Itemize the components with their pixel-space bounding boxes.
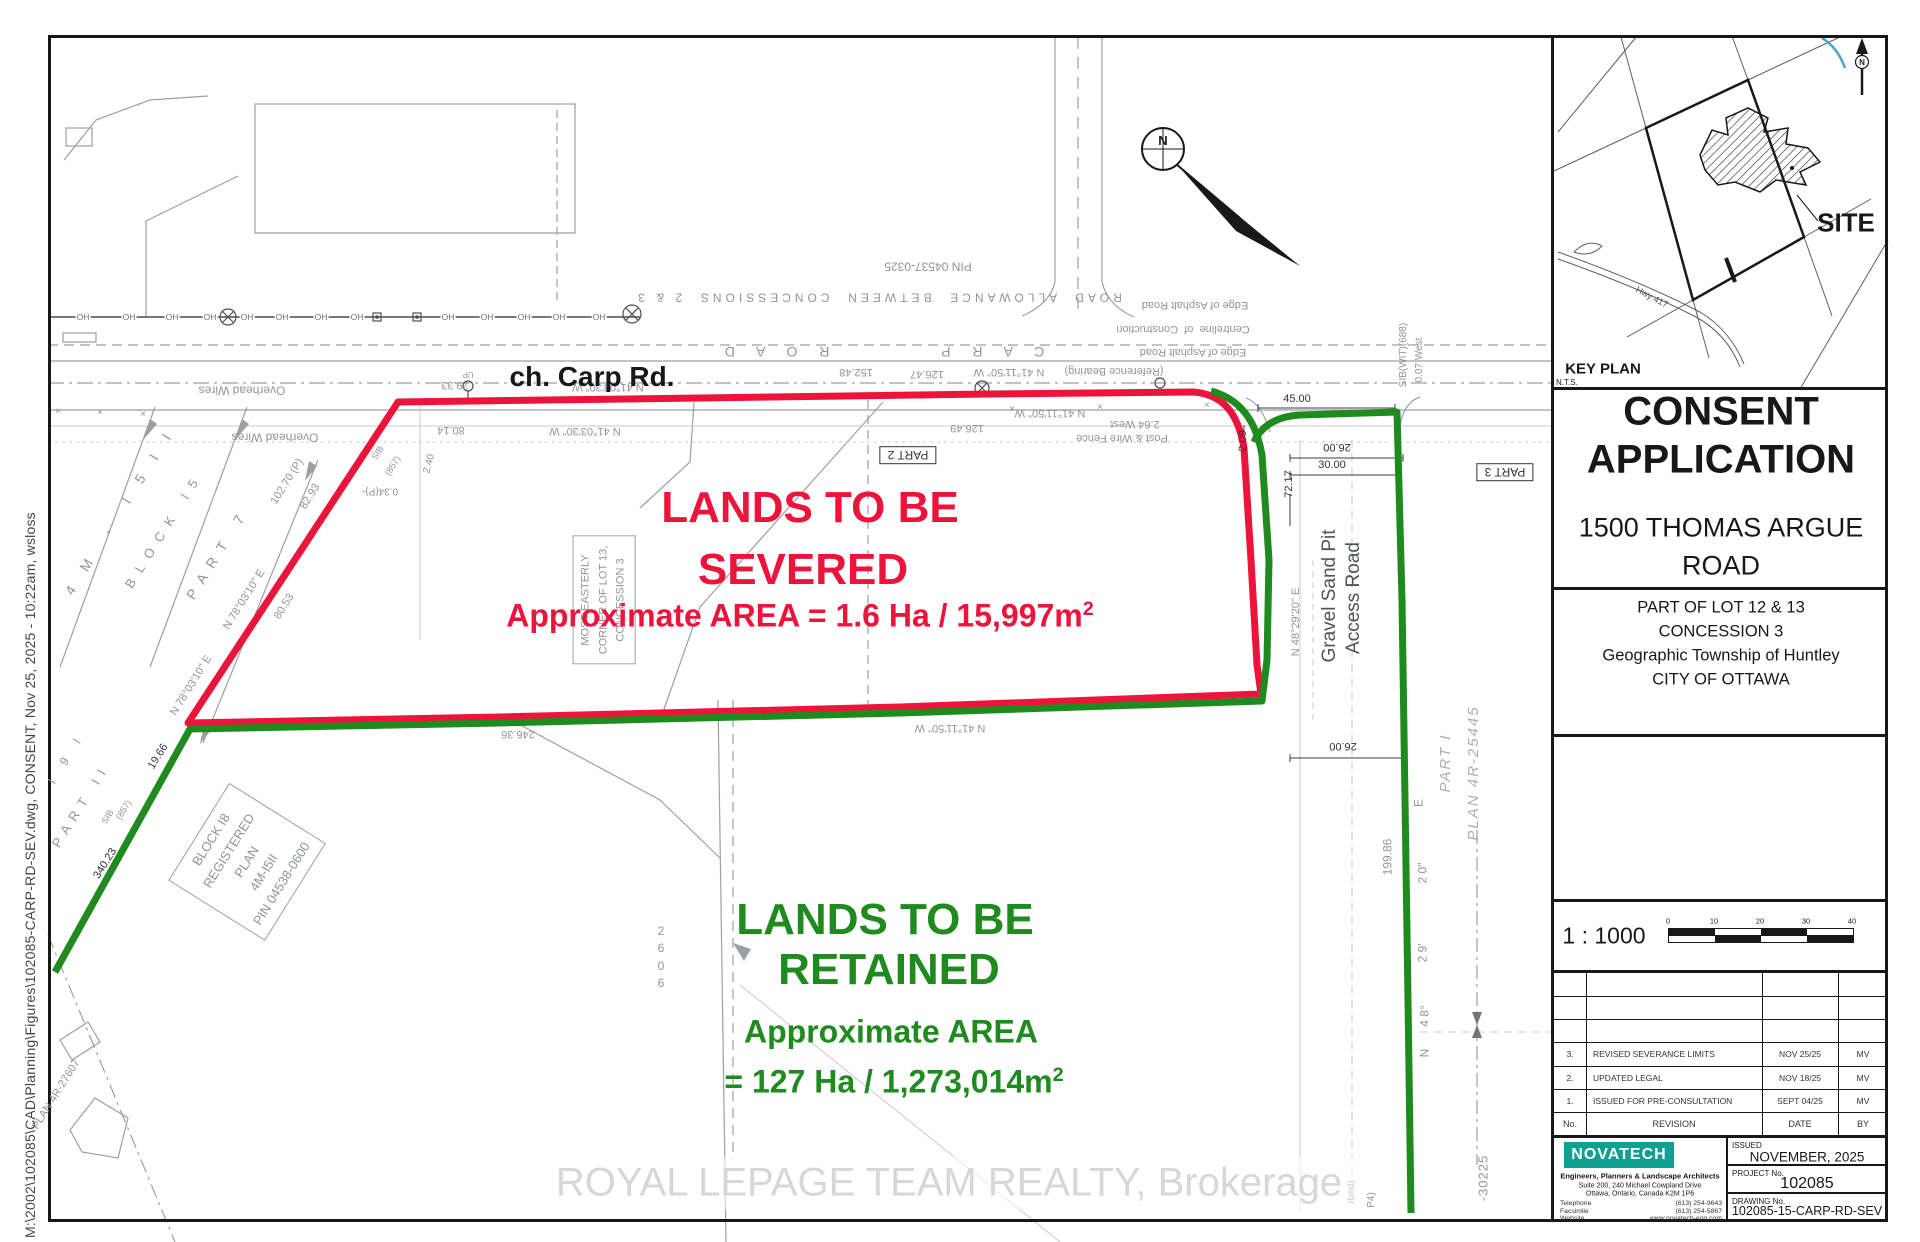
survey-annotation: C A R P R O A D: [716, 342, 1044, 362]
survey-annotation: Edge of Asphalt Road: [1142, 296, 1248, 312]
oh-wire-tag: OH: [480, 312, 495, 322]
project-number-value: 102085: [1780, 1175, 1833, 1193]
survey-annotation: N 41°11'50" W: [974, 363, 1045, 379]
retained-label-line2: RETAINED: [778, 945, 1000, 995]
survey-annotation: ×: [1204, 399, 1210, 414]
oh-wire-tag: OH: [275, 312, 290, 322]
scale-tick-label: 30: [1802, 917, 1810, 926]
oh-wire-tag: OH: [350, 312, 365, 322]
contact-label: Website: [1560, 1215, 1584, 1222]
issued-value: NOVEMBER, 2025: [1750, 1150, 1865, 1165]
survey-annotation: 126.49: [950, 419, 984, 435]
survey-annotation: UP: [462, 368, 473, 380]
revision-row: [1554, 996, 1888, 1019]
scale-tick-label: 40: [1848, 917, 1856, 926]
survey-annotation: N: [1416, 1049, 1433, 1058]
address-line2: ROAD: [1682, 551, 1760, 582]
survey-annotation: SIB(WIT)(688): [1397, 323, 1412, 387]
carp-road-label: ch. Carp Rd.: [510, 361, 675, 393]
contact-value: www.novatech-eng.com: [1650, 1215, 1722, 1222]
survey-annotation: ×: [55, 405, 61, 420]
plan-sheet: N N PIN 04537-0325ROAD: [0, 0, 1920, 1242]
oh-wire-tag: OH: [165, 312, 180, 322]
revision-cell: BY: [1838, 1119, 1888, 1129]
project-number-label: PROJECT No.: [1732, 1169, 1784, 1178]
survey-annotation: 26.00: [1329, 737, 1357, 753]
firm-contact-row: Telephone(613) 254-9643: [1560, 1200, 1722, 1207]
site-parcel-hatch: [1700, 108, 1820, 192]
legal-line: Geographic Township of Huntley: [1602, 647, 1839, 666]
drawing-number-value: 102085-15-CARP-RD-SEV: [1732, 1204, 1882, 1218]
project-title-line2: APPLICATION: [1587, 438, 1855, 483]
survey-annotation: Overhead Wires: [199, 381, 286, 398]
survey-annotation: PART I: [1435, 734, 1457, 793]
firm-tagline: Engineers, Planners & Landscape Architec…: [1560, 1172, 1719, 1181]
survey-annotation: 30.00: [1318, 458, 1346, 474]
survey-annotation: N 41°11'50" W: [915, 719, 986, 735]
revision-cell: 3.: [1554, 1049, 1586, 1059]
oh-wire-tag: OH: [314, 312, 329, 322]
survey-annotation: 2 6 0 6: [658, 923, 665, 993]
survey-annotation: Edge of Asphalt Road: [1140, 343, 1246, 359]
contact-label: Telephone: [1560, 1200, 1591, 1207]
retained-area-label2: = 127 Ha / 1,273,014m2: [724, 1064, 1063, 1101]
scale-bar-bottom: [1668, 935, 1854, 944]
survey-annotation: ×: [140, 408, 146, 423]
legal-line: PART OF LOT 12 & 13: [1637, 599, 1805, 618]
legal-line: CONCESSION 3: [1659, 623, 1784, 642]
survey-annotation: 2.09: [1236, 430, 1252, 451]
revision-cell: UPDATED LEGAL: [1586, 1073, 1762, 1083]
tb-rule: [1554, 1135, 1888, 1138]
revision-table: 3.REVISED SEVERANCE LIMITSNOV 25/25MV2.U…: [1554, 973, 1888, 1135]
revision-row: 3.REVISED SEVERANCE LIMITSNOV 25/25MV: [1554, 1042, 1888, 1065]
firm-contact-row: Websitewww.novatech-eng.com: [1560, 1215, 1722, 1222]
survey-annotation: Post & Wire Fence: [1076, 429, 1168, 445]
scale-tick-label: 20: [1756, 917, 1764, 926]
keyplan-scale-note: N.T.S.: [1556, 378, 1578, 387]
keyplan-north-letter: N: [1859, 58, 1865, 67]
oh-wire-tag: OH: [552, 312, 567, 322]
survey-annotation: N 41°03'30" W: [549, 422, 621, 438]
firm-address2: Ottawa, Ontario, Canada K2M 1P6: [1586, 1191, 1694, 1198]
revision-cell: No.: [1554, 1119, 1586, 1129]
project-title-line1: CONSENT: [1623, 390, 1819, 435]
oh-wire-tag: OH: [122, 312, 137, 322]
revision-cell: NOV 18/25: [1762, 1073, 1838, 1083]
survey-annotation: ROAD ALLOWANCE BETWEEN CONCESSIONS 2 & 3: [634, 288, 1122, 305]
revision-cell: 1.: [1554, 1096, 1586, 1106]
firm-contact-row: Facsimile(613) 254-5867: [1560, 1208, 1722, 1215]
contact-label: Facsimile: [1560, 1208, 1589, 1215]
survey-annotation: PART 2: [880, 446, 937, 464]
survey-annotation: PIN 04537-0325: [884, 257, 971, 274]
north-letter: N: [1158, 133, 1167, 148]
revision-row: 1.ISSUED FOR PRE-CONSULTATIONSEPT 04/25M…: [1554, 1089, 1888, 1112]
scale-ratio: 1 : 1000: [1562, 923, 1645, 950]
survey-annotation: 152.48: [839, 363, 873, 379]
severed-area-label: Approximate AREA = 1.6 Ha / 15,997m2: [506, 598, 1094, 635]
revision-cell: REVISED SEVERANCE LIMITS: [1586, 1049, 1762, 1059]
revision-cell: MV: [1838, 1096, 1888, 1106]
survey-annotation: 80.14: [437, 421, 465, 437]
oh-wire-tag: OH: [203, 312, 218, 322]
oh-wire-tag: OH: [517, 312, 532, 322]
survey-annotation: PLAN 4R-25445: [1463, 705, 1485, 840]
oh-wire-tag: OH: [240, 312, 255, 322]
oh-wire-tag: OH: [592, 312, 607, 322]
survey-annotation: N 41°11'50" W: [1015, 404, 1086, 420]
revision-cell: ISSUED FOR PRE-CONSULTATION: [1586, 1096, 1762, 1106]
novatech-logo: NOVATECH: [1564, 1142, 1674, 1168]
plot-stamp: M:\2002\102085\CAD\Planning\Figures\1020…: [22, 512, 38, 1238]
revision-cell: MV: [1838, 1049, 1888, 1059]
survey-annotation: -30225: [1475, 1155, 1494, 1201]
survey-annotation: ×: [1097, 401, 1103, 416]
revision-cell: 2.: [1554, 1073, 1586, 1083]
survey-annotation: Centreline of Construction: [1116, 320, 1249, 336]
water-feature: [1822, 38, 1845, 68]
survey-annotation: 2 9': [1414, 944, 1431, 963]
revision-row: [1554, 1019, 1888, 1042]
survey-annotation: 246.36: [501, 725, 535, 741]
survey-annotation: 0.07 West: [1413, 338, 1428, 383]
revision-cell: MV: [1838, 1073, 1888, 1083]
contact-value: (613) 254-5867: [1676, 1208, 1722, 1215]
severed-label-line2: SEVERED: [698, 545, 908, 595]
survey-annotation: (Reference Bearing): [1064, 362, 1163, 378]
tb-rule: [1554, 587, 1888, 590]
revision-cell: DATE: [1762, 1119, 1838, 1129]
survey-annotation: Access Road: [1340, 542, 1368, 654]
severed-label-line1: LANDS TO BE: [661, 483, 958, 533]
tb-rule: [1554, 734, 1888, 737]
survey-annotation: P4): [1365, 1192, 1380, 1208]
survey-annotation: 2 0": [1414, 863, 1431, 884]
legal-line: CITY OF OTTAWA: [1652, 671, 1790, 690]
address-line1: 1500 THOMAS ARGUE: [1579, 513, 1864, 544]
revision-row: [1554, 973, 1888, 996]
survey-annotation: Overhead Wires: [232, 428, 319, 445]
revision-cell: SEPT 04/25: [1762, 1096, 1838, 1106]
survey-annotation: ×: [97, 406, 103, 421]
keyplan-heading: KEY PLAN: [1565, 361, 1641, 378]
survey-annotation: 4 8°: [1416, 1005, 1433, 1026]
survey-annotation: ×: [1009, 403, 1015, 418]
scale-tick-label: 10: [1710, 917, 1718, 926]
contact-value: (613) 254-9643: [1676, 1200, 1722, 1207]
station-arrows: [1472, 1012, 1482, 1038]
revision-row: 2.UPDATED LEGALNOV 18/25MV: [1554, 1066, 1888, 1089]
survey-annotation: 199.86: [1379, 839, 1396, 876]
oh-wire-tag: OH: [441, 312, 456, 322]
north-arrow: N: [1142, 128, 1300, 266]
survey-annotation: 0.34(P)-: [362, 483, 398, 498]
revision-header-row: No.REVISIONDATEBY: [1554, 1112, 1888, 1135]
survey-annotation: E: [1410, 799, 1427, 807]
oh-wire-tag: OH: [76, 312, 91, 322]
survey-annotation: 45.00: [1283, 392, 1311, 408]
survey-annotation: 126.47: [910, 365, 944, 381]
tb-rule: [1554, 899, 1888, 902]
retained-label-line1: LANDS TO BE: [736, 895, 1033, 945]
brokerage-watermark: ROYAL LEPAGE TEAM REALTY, Brokerage: [542, 1157, 1356, 1210]
survey-annotation: 72.17: [1282, 470, 1298, 498]
site-label: SITE: [1817, 208, 1875, 239]
revision-cell: REVISION: [1586, 1119, 1762, 1129]
survey-annotation: 26.00: [1323, 438, 1351, 454]
firm-address1: Suite 200, 240 Michael Cowpland Drive: [1579, 1183, 1702, 1190]
tb-bottom-divider: [1726, 1138, 1728, 1222]
firm-name: NOVATECH: [1571, 1146, 1666, 1164]
survey-annotation: N 48°29'20" E: [1289, 588, 1305, 657]
survey-annotation: PART 3: [1477, 463, 1534, 481]
scale-tick-label: 0: [1666, 917, 1670, 926]
revision-cell: NOV 25/25: [1762, 1049, 1838, 1059]
retained-area-label1: Approximate AREA: [744, 1014, 1038, 1051]
